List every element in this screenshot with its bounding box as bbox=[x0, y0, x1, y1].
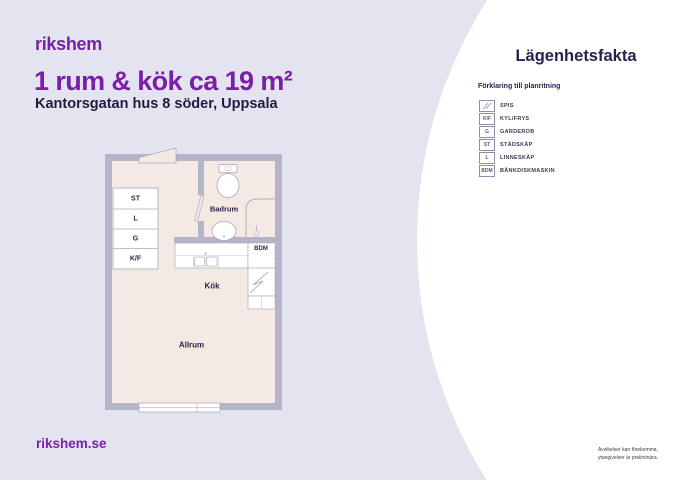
window bbox=[139, 403, 220, 412]
sink-icon bbox=[212, 222, 236, 241]
room-allrum-label: Allrum bbox=[179, 341, 204, 350]
disclaimer-line2: ytangivelser är preliminära. bbox=[598, 455, 658, 461]
bathroom-left-wall bbox=[198, 161, 204, 195]
kf-symbol-box: K/F bbox=[479, 113, 495, 125]
legend-row-garderob: G GARDEROB bbox=[479, 125, 555, 138]
room-badrum-label: Badrum bbox=[210, 205, 238, 214]
legend-title: Förklaring till planritning bbox=[478, 83, 560, 90]
website-link[interactable]: rikshem.se bbox=[36, 436, 107, 451]
legend: SPIS K/F KYL/FRYS G GARDEROB ST STÄDSKÅP… bbox=[479, 99, 555, 177]
bdm-symbol-box: BDM bbox=[479, 165, 495, 177]
lower-counter bbox=[248, 296, 275, 309]
toilet-icon bbox=[217, 165, 239, 198]
legend-row-kylfrys: K/F KYL/FRYS bbox=[479, 112, 555, 125]
room-kok-label: Kök bbox=[204, 282, 219, 291]
kitchen-counter bbox=[175, 243, 248, 268]
floorplan-drawing bbox=[0, 0, 679, 480]
spis-icon bbox=[479, 100, 495, 112]
disclaimer-text: Avvikelser kan förekomma, ytangivelser ä… bbox=[586, 447, 670, 463]
flyer-page: rikshem 1 rum & kök ca 19 m² Kantorsgata… bbox=[0, 0, 679, 480]
legend-row-linneskap: L LINNESKÅP bbox=[479, 151, 555, 164]
legend-label: LINNESKÅP bbox=[500, 155, 534, 161]
legend-label: SPIS bbox=[500, 103, 514, 109]
l-symbol-box: L bbox=[479, 152, 495, 164]
closet-g-label: G bbox=[133, 236, 138, 243]
facts-heading: Lägenhetsfakta bbox=[470, 47, 679, 66]
legend-row-bankdiskmaskin: BDM BÄNKDISKMASKIN bbox=[479, 164, 555, 177]
legend-label: GARDEROB bbox=[500, 129, 534, 135]
closet-kf-label: K/F bbox=[130, 256, 141, 263]
st-symbol-box: ST bbox=[479, 139, 495, 151]
closet-l-label: L bbox=[133, 216, 137, 223]
legend-label: STÄDSKÅP bbox=[500, 142, 533, 148]
legend-row-spis: SPIS bbox=[479, 99, 555, 112]
closet-st-label: ST bbox=[131, 196, 140, 203]
legend-row-stadskap: ST STÄDSKÅP bbox=[479, 138, 555, 151]
stove-icon bbox=[248, 268, 275, 296]
g-symbol-box: G bbox=[479, 126, 495, 138]
disclaimer-line1: Avvikelser kan förekomma, bbox=[598, 447, 658, 453]
legend-label: BÄNKDISKMASKIN bbox=[500, 168, 555, 174]
bathroom-wall-stub bbox=[198, 221, 204, 237]
legend-label: KYL/FRYS bbox=[500, 116, 529, 122]
bdm-label: BDM bbox=[254, 246, 268, 252]
